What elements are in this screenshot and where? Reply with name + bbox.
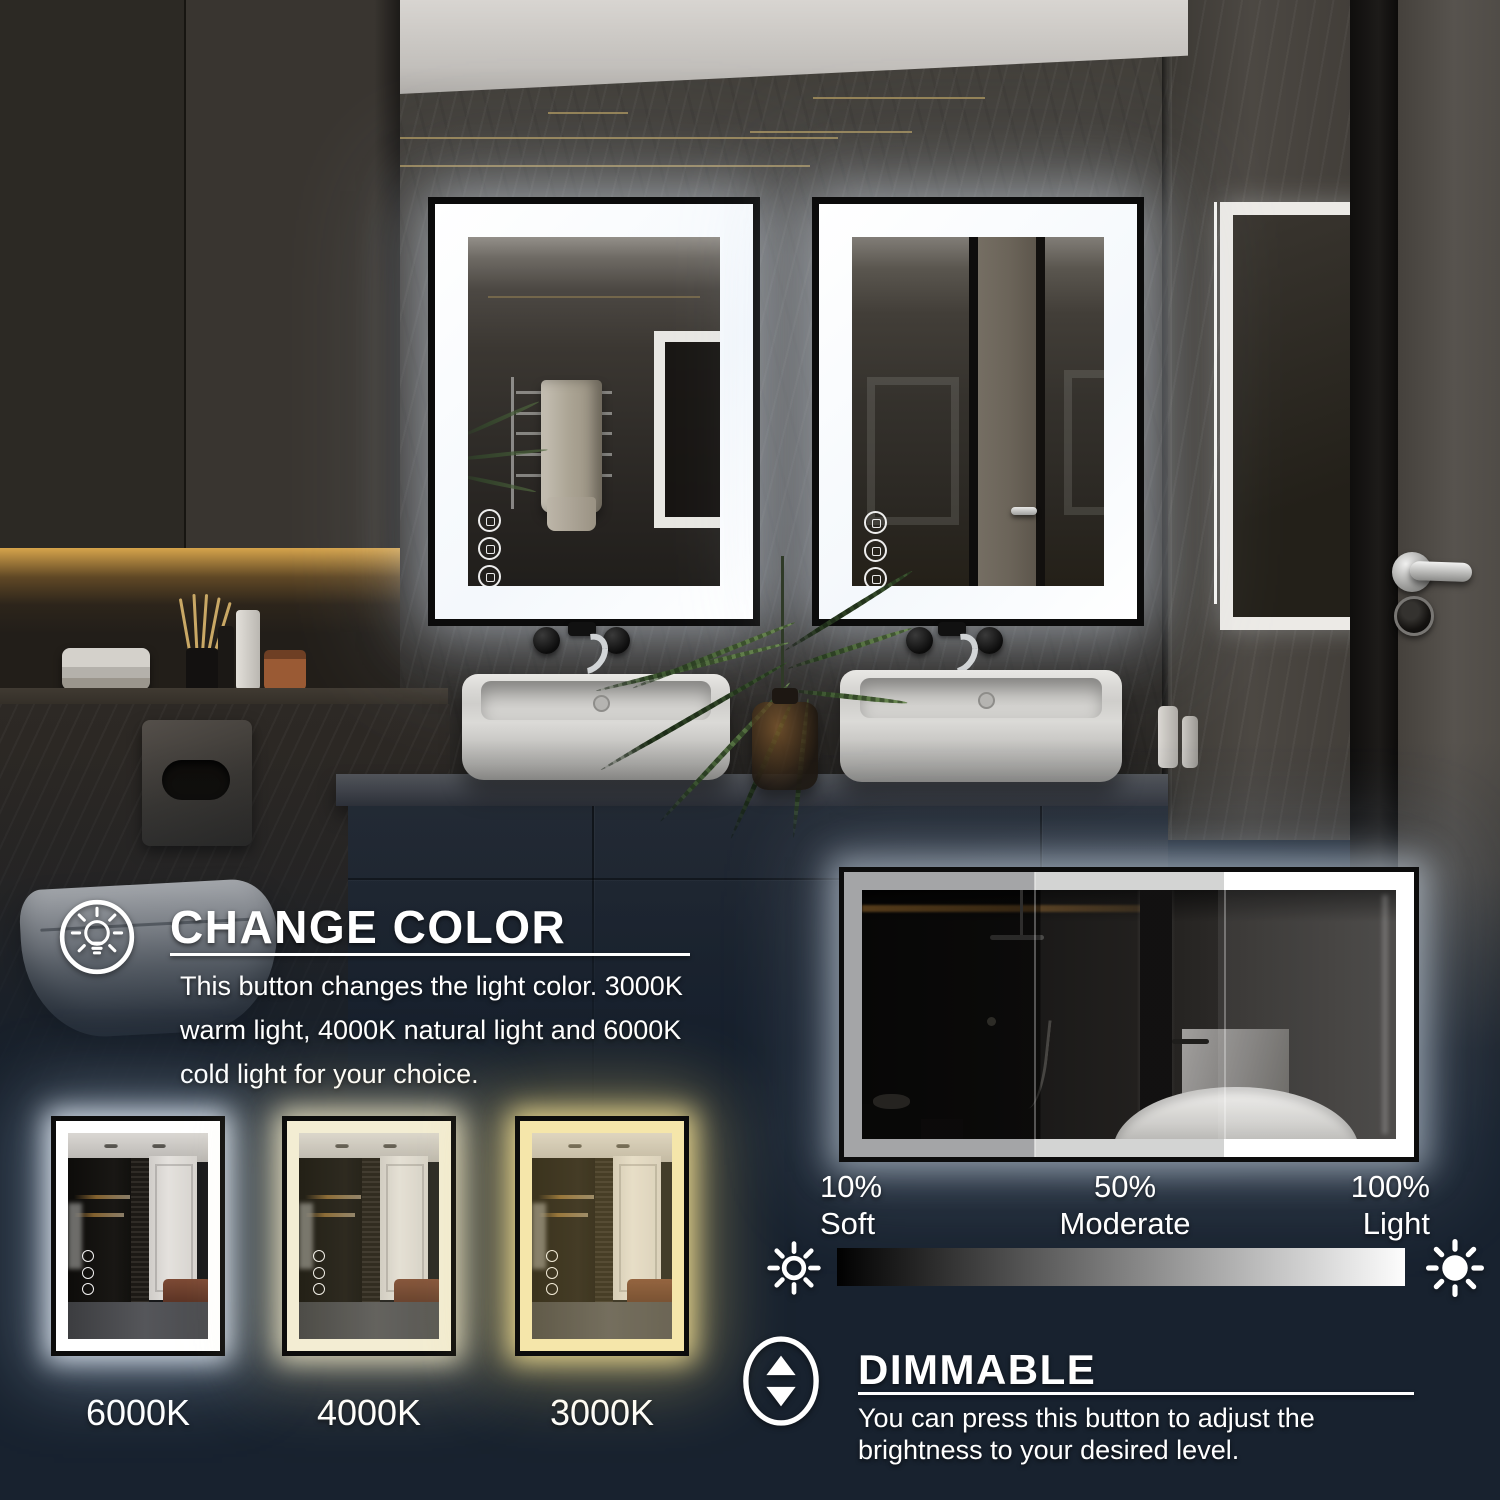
dimmable-underline: [858, 1392, 1414, 1395]
change-color-description: This button changes the light color. 300…: [180, 964, 725, 1096]
brass-accent-line: [750, 131, 912, 133]
faucet-handle: [533, 627, 560, 654]
dimmable-mirror-figure: [839, 867, 1419, 1162]
color-temp-label: 3000K: [515, 1392, 689, 1434]
closet-reflection: [532, 1133, 672, 1339]
lightbulb-icon: [56, 896, 138, 978]
brightness-percent: 10%: [820, 1168, 882, 1205]
sun-bright-icon: [1422, 1235, 1488, 1301]
tall-cabinets: [0, 0, 400, 560]
cosmetic-bottle: [218, 626, 234, 690]
change-color-underline: [170, 953, 690, 956]
sun-dim-icon: [764, 1238, 824, 1298]
led-vanity-mirror-left: [428, 197, 760, 626]
brightness-level-50: 50% Moderate: [1035, 1168, 1215, 1242]
mirror-reflection: [852, 237, 1104, 586]
mirror-preview-warm: [515, 1116, 689, 1356]
color-temp-option-6000k: 6000K: [51, 1116, 225, 1434]
dim-adjust-icon: [740, 1334, 822, 1428]
cosmetic-tube: [236, 610, 260, 690]
led-mirror-product-infographic: CHANGE COLOR This button changes the lig…: [0, 0, 1500, 1500]
brightness-percent: 100%: [1300, 1168, 1430, 1205]
brass-accent-line: [548, 112, 628, 114]
dimmable-title: DIMMABLE: [858, 1346, 1096, 1394]
color-temp-option-4000k: 4000K: [282, 1116, 456, 1434]
brightness-label: Light: [1300, 1205, 1430, 1242]
brightness-percent: 50%: [1035, 1168, 1215, 1205]
faucet-handle: [906, 627, 933, 654]
mirror-preview-natural: [282, 1116, 456, 1356]
dimmable-description: You can press this button to adjust the …: [858, 1402, 1373, 1466]
niche-led-strip: [0, 548, 400, 634]
door-handle-lever: [1410, 561, 1473, 582]
door-keyhole: [1394, 596, 1434, 636]
touch-button-icon: [864, 539, 887, 562]
brightness-level-10: 10% Soft: [820, 1168, 882, 1242]
brightness-label: Soft: [820, 1205, 882, 1242]
brightness-gradient-bar: [837, 1248, 1405, 1286]
led-band-brightness-zones: [844, 872, 1414, 1157]
reflected-towel: [541, 380, 601, 513]
color-temp-label: 6000K: [51, 1392, 225, 1434]
led-vanity-mirror-right: [812, 197, 1144, 626]
touch-button-icon: [864, 567, 887, 586]
led-band: [520, 1121, 684, 1351]
led-band: [287, 1121, 451, 1351]
reflected-door-handle: [1011, 507, 1037, 515]
touch-button-icon: [478, 509, 501, 532]
brightness-label: Moderate: [1035, 1205, 1215, 1242]
brass-accent-line: [813, 97, 985, 99]
reflected-mirror: [654, 331, 720, 528]
folded-towels: [62, 648, 150, 690]
bathroom-reflection: [862, 890, 1396, 1139]
plant-stem: [781, 556, 784, 706]
color-temp-label: 4000K: [282, 1392, 456, 1434]
brightness-level-100: 100% Light: [1300, 1168, 1430, 1242]
reed-diffuser-bottle: [186, 648, 218, 690]
touch-button-icon: [478, 537, 501, 560]
touch-button-icon: [864, 511, 887, 534]
mirror-preview-cool: [51, 1116, 225, 1356]
faucet-handle: [976, 627, 1003, 654]
closet-reflection: [68, 1133, 208, 1339]
change-color-title: CHANGE COLOR: [170, 900, 566, 954]
color-temp-option-3000k: 3000K: [515, 1116, 689, 1434]
closet-reflection: [299, 1133, 439, 1339]
copper-jar: [264, 650, 306, 690]
mirror-reflection: [468, 237, 720, 586]
led-band: [56, 1121, 220, 1351]
touch-button-icon: [478, 565, 501, 586]
reflected-door: [978, 237, 1036, 586]
